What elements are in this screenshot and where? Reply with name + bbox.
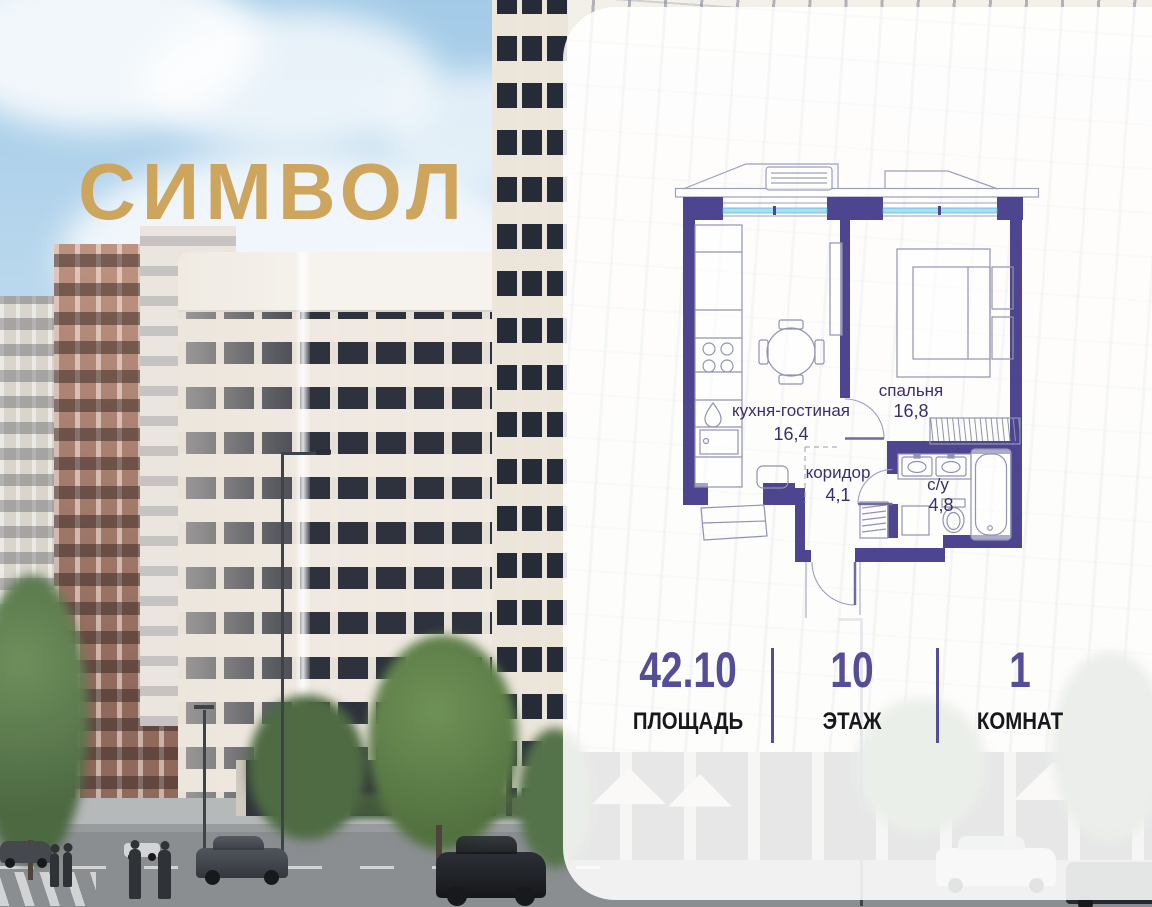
street-lamp-head: [316, 449, 331, 455]
furniture: [695, 225, 1020, 540]
crosswalk: [0, 872, 96, 906]
stat-rooms-label: КОМНАТ: [952, 708, 1088, 736]
listing-card: СИМВОЛ: [0, 0, 1152, 907]
pedestrian: [158, 850, 171, 899]
stat-floor: 10 ЭТАЖ: [772, 645, 932, 736]
dining-table: [767, 328, 815, 376]
wardrobe: [930, 418, 1020, 444]
cabinet: [830, 243, 842, 335]
nightstand: [992, 267, 1013, 309]
car: [196, 848, 288, 878]
stat-area-value: 42.10: [626, 645, 751, 695]
stat-area-label: ПЛОЩАДЬ: [620, 708, 756, 736]
room-label-bathroom: с/у: [927, 475, 949, 494]
room-area-kitchen: 16,4: [773, 424, 808, 444]
pedestrian: [129, 849, 141, 899]
nightstand: [992, 317, 1013, 359]
stats-divider: [936, 648, 939, 743]
street-lamp: [281, 452, 284, 852]
room-label-kitchen: кухня-гостиная: [732, 401, 850, 420]
pedestrian: [50, 853, 59, 887]
room-label-bedroom: спальня: [879, 381, 944, 400]
kitchen-counter: [695, 225, 742, 487]
balcony-outlines: [676, 164, 1039, 197]
stat-rooms-value: 1: [958, 645, 1083, 695]
room-label-corridor: коридор: [806, 463, 871, 482]
stat-floor-label: ЭТАЖ: [784, 708, 920, 736]
project-logo: СИМВОЛ: [58, 146, 488, 238]
tree: [248, 695, 366, 840]
bath-cabinet: [902, 506, 929, 535]
street-lamp-arm: [281, 452, 321, 455]
room-area-bedroom: 16,8: [893, 401, 928, 421]
bed: [897, 249, 990, 377]
pedestrian: [63, 852, 72, 887]
street-lamp: [203, 710, 206, 862]
room-area-corridor: 4,1: [825, 485, 850, 505]
stat-floor-value: 10: [790, 645, 915, 695]
room-area-bathroom: 4,8: [928, 495, 953, 515]
car-suv: [436, 852, 546, 898]
car: [0, 841, 52, 863]
stat-area: 42.10 ПЛОЩАДЬ: [608, 645, 768, 736]
street-lamp-arm: [194, 705, 214, 709]
loggia-outline: [701, 505, 767, 540]
floor-plan-svg: кухня-гостиная 16,4 спальня 16,8 коридор…: [660, 140, 1060, 620]
tree: [368, 635, 518, 850]
stat-rooms: 1 КОМНАТ: [940, 645, 1100, 736]
